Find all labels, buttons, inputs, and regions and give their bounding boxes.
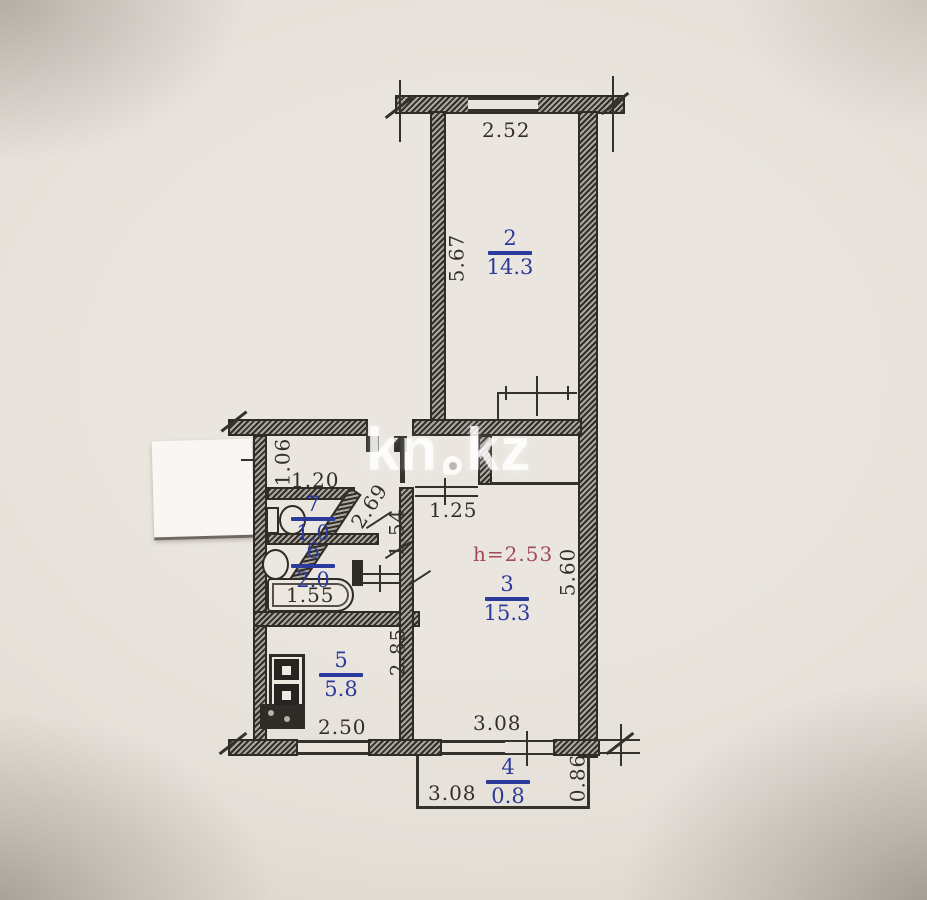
room-7-area: 1.0	[296, 523, 329, 544]
room-2-number: 2	[503, 228, 516, 249]
dim-tick	[536, 376, 538, 416]
dim-tick	[567, 386, 569, 400]
room-5-number: 5	[334, 650, 347, 671]
watermark-text-kz: kz	[466, 420, 531, 480]
dim-room3-width: 3.08	[473, 711, 522, 735]
map-pin-hole	[449, 462, 457, 470]
room-5-area: 5.8	[324, 679, 357, 700]
room-7-number: 7	[306, 494, 319, 515]
dim-wc-width: 1.20	[291, 468, 340, 492]
window-kitchen	[298, 740, 368, 755]
kn-kz-watermark: kn kz	[366, 420, 531, 480]
dim-hall-opening: 1.25	[429, 498, 478, 522]
room-4-number: 4	[501, 757, 514, 778]
toilet-tank-icon	[266, 507, 279, 534]
stove-burner-icon	[274, 659, 299, 680]
wall-mid-left	[228, 419, 368, 436]
room-3-label: 3 15.3	[475, 574, 539, 624]
room-5-label: 5 5.8	[309, 650, 373, 700]
room-3-area: 15.3	[484, 603, 531, 624]
dim-tick	[379, 565, 381, 592]
room-6-area: 2.0	[296, 570, 329, 591]
dim-room2-width: 2.52	[482, 118, 531, 142]
wall-bottom-a	[228, 739, 298, 756]
balcony-door-opening	[505, 740, 553, 755]
room-4-label: 4 0.8	[476, 757, 540, 807]
map-pin-icon	[443, 456, 462, 475]
window-room2	[468, 97, 538, 112]
stove-burner-icon	[274, 684, 299, 705]
dim-tick	[505, 386, 507, 400]
dim-kitchen-width: 2.50	[318, 715, 367, 739]
dim-tick	[241, 459, 255, 461]
ceiling-height-note: h=2.53	[473, 542, 553, 566]
room-2-label: 2 14.3	[478, 228, 542, 278]
hall-opening	[415, 486, 478, 497]
wall-bath-bottom	[253, 611, 420, 627]
room-3-number: 3	[500, 574, 513, 595]
dim-corridor: 1.54	[384, 509, 408, 558]
floor-plan-photo: 2.52 5.67 1.06 1.20 2.69 1.54 1.25 1.55 …	[0, 0, 927, 900]
stove-base-icon	[260, 704, 305, 729]
dim-extension	[598, 752, 640, 754]
stove-dot-icon	[284, 716, 290, 722]
dim-kitchen-depth: 2.85	[385, 628, 409, 677]
dim-tick	[612, 76, 614, 152]
dim-room3-depth: 5.60	[555, 548, 579, 597]
dim-tick	[399, 80, 401, 142]
watermark-text-kn: kn	[366, 420, 438, 480]
white-patch	[152, 439, 255, 541]
stove-dot-icon	[268, 710, 274, 716]
room-6-label: 6 2.0	[281, 541, 345, 591]
dim-room2-depth: 5.67	[444, 234, 468, 283]
dim-balcony-width: 3.08	[428, 781, 477, 805]
room-7-label: 7 1.0	[281, 494, 345, 544]
room-4-area: 0.8	[491, 786, 524, 807]
room-2-area: 14.3	[487, 257, 534, 278]
window-room3	[442, 740, 505, 755]
wall-bottom-b	[368, 739, 442, 756]
dim-balcony-depth: 0.86	[565, 754, 589, 803]
